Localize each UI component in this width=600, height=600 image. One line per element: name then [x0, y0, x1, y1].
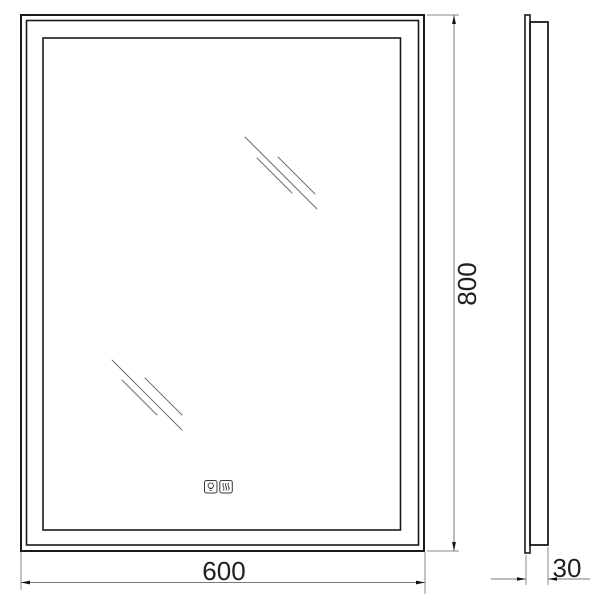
- outer-frame: [21, 15, 424, 551]
- arrow-bottom: [452, 542, 456, 551]
- glint-line: [257, 158, 292, 193]
- side-frame-body: [530, 22, 548, 545]
- glint-group-lower: [112, 360, 182, 430]
- middle-frame: [27, 21, 419, 546]
- arrow-top: [452, 15, 456, 24]
- height-label: 800: [452, 262, 482, 305]
- glint-line: [112, 360, 182, 430]
- width-label: 600: [202, 556, 245, 586]
- mirror-technical-drawing: 600 800 30: [0, 0, 600, 600]
- light-bulb-icon: [205, 481, 218, 494]
- width-dimension: 600: [21, 552, 425, 594]
- glint-line: [145, 378, 182, 415]
- arrow-right: [416, 581, 425, 585]
- arrow-left: [21, 581, 30, 585]
- anti-fog-waves-icon: [220, 481, 233, 494]
- glint-group-upper: [245, 137, 317, 209]
- glint-line: [245, 137, 317, 209]
- arrow-left-inward: [517, 577, 526, 581]
- inner-frame: [43, 38, 401, 530]
- height-dimension: 800: [427, 15, 482, 551]
- depth-dimension: 30: [491, 547, 590, 585]
- side-view: [525, 15, 548, 553]
- touch-controls: [205, 481, 233, 494]
- drawing-canvas: 600 800 30: [0, 0, 600, 600]
- front-view: [21, 15, 424, 551]
- depth-label: 30: [553, 553, 582, 583]
